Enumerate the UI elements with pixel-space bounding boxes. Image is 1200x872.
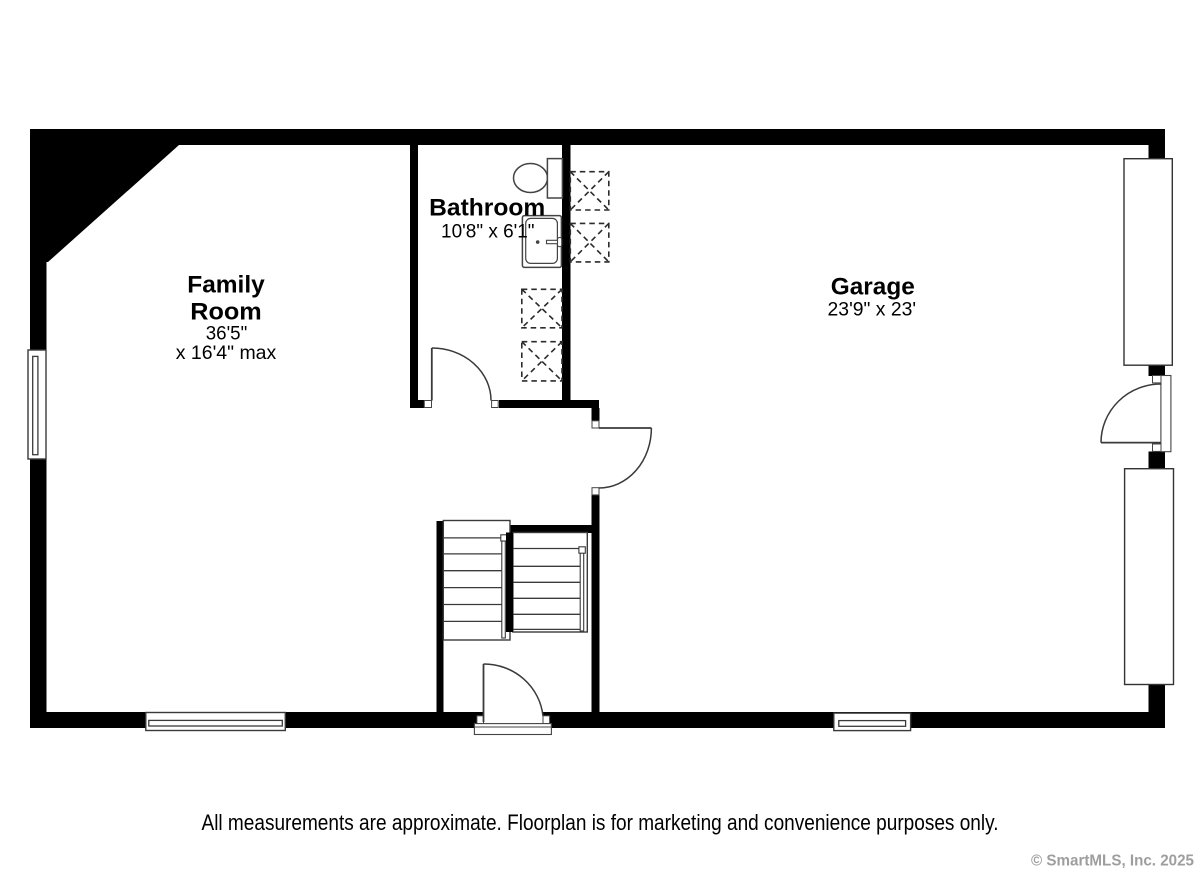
svg-text:36'5": 36'5": [206, 322, 248, 344]
svg-text:x 16'4" max: x 16'4" max: [176, 342, 277, 364]
svg-text:10'8" x 6'1": 10'8" x 6'1": [441, 221, 535, 243]
svg-text:All measurements are approxima: All measurements are approximate. Floorp…: [202, 810, 999, 835]
svg-text:Bathroom: Bathroom: [429, 195, 545, 222]
svg-text:© SmartMLS, Inc. 2025: © SmartMLS, Inc. 2025: [1031, 852, 1194, 869]
svg-text:23'9" x 23': 23'9" x 23': [828, 298, 917, 320]
svg-text:Family: Family: [187, 272, 265, 299]
svg-text:Garage: Garage: [831, 274, 915, 301]
